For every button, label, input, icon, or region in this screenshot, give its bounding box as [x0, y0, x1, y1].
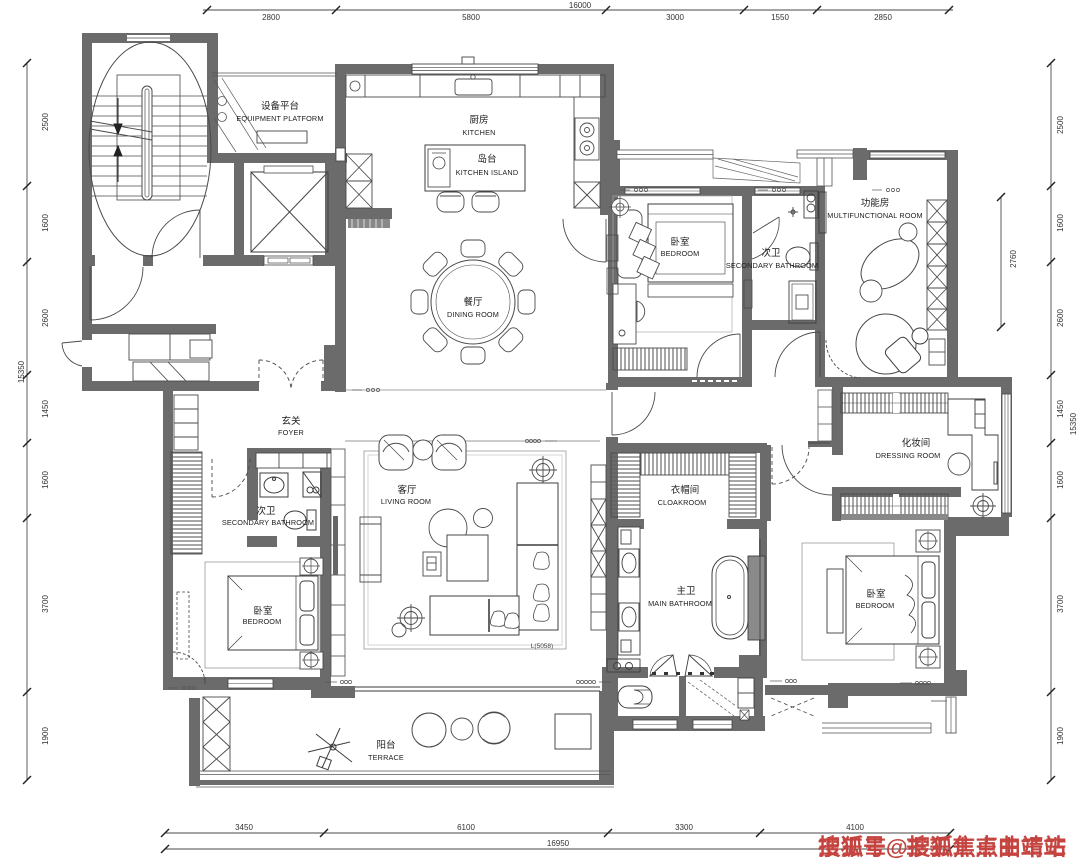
svg-text:BEDROOM: BEDROOM: [856, 601, 895, 610]
svg-text:CLOAKROOM: CLOAKROOM: [658, 498, 707, 507]
svg-text:15350: 15350: [1069, 412, 1078, 435]
svg-text:1600: 1600: [41, 471, 50, 489]
svg-text:16950: 16950: [547, 839, 570, 848]
svg-text:玄关: 玄关: [281, 415, 301, 427]
svg-text:TERRACE: TERRACE: [368, 753, 404, 762]
svg-text:2600: 2600: [1056, 309, 1065, 327]
svg-text:次卫: 次卫: [761, 247, 781, 259]
svg-text:1900: 1900: [41, 727, 50, 745]
svg-text:DRESSING ROOM: DRESSING ROOM: [876, 451, 941, 460]
svg-text:3000: 3000: [666, 13, 684, 22]
svg-text:厨房: 厨房: [469, 114, 488, 126]
svg-text:2500: 2500: [1056, 116, 1065, 134]
svg-text:DINING ROOM: DINING ROOM: [447, 310, 499, 319]
svg-text:FOYER: FOYER: [278, 428, 304, 437]
svg-text:岛台: 岛台: [477, 153, 496, 165]
svg-text:1600: 1600: [41, 214, 50, 232]
svg-text:客厅: 客厅: [397, 484, 417, 496]
svg-text:15350: 15350: [17, 360, 26, 383]
svg-text:L(5058): L(5058): [531, 643, 553, 650]
svg-text:2760: 2760: [1009, 250, 1018, 268]
svg-text:搜狐号@搜狐焦点曲靖站: 搜狐号@搜狐焦点曲靖站: [818, 834, 1066, 860]
svg-text:BEDROOM: BEDROOM: [243, 617, 282, 626]
svg-text:1600: 1600: [1056, 471, 1065, 489]
svg-text:LIVING ROOM: LIVING ROOM: [381, 497, 431, 506]
svg-text:1450: 1450: [1056, 400, 1065, 418]
svg-text:BEDROOM: BEDROOM: [661, 249, 700, 258]
svg-text:2500: 2500: [41, 113, 50, 131]
svg-text:3300: 3300: [675, 823, 693, 832]
svg-text:次卫: 次卫: [256, 505, 276, 517]
svg-text:功能房: 功能房: [861, 197, 890, 209]
svg-text:3700: 3700: [1056, 595, 1065, 613]
svg-text:1900: 1900: [1056, 727, 1065, 745]
svg-text:1600: 1600: [1056, 214, 1065, 232]
svg-text:卧室: 卧室: [253, 605, 272, 617]
svg-text:6100: 6100: [457, 823, 475, 832]
svg-text:主卫: 主卫: [676, 585, 696, 597]
svg-text:SECONDARY BATHROOM: SECONDARY BATHROOM: [222, 518, 314, 527]
svg-text:2800: 2800: [262, 13, 280, 22]
svg-text:阳台: 阳台: [376, 739, 395, 751]
svg-text:化妆间: 化妆间: [902, 437, 931, 449]
svg-text:16000: 16000: [569, 1, 592, 10]
svg-text:餐厅: 餐厅: [463, 296, 483, 308]
svg-text:1550: 1550: [771, 13, 789, 22]
svg-text:2850: 2850: [874, 13, 892, 22]
svg-text:MULTIFUNCTIONAL ROOM: MULTIFUNCTIONAL ROOM: [827, 211, 922, 220]
svg-text:3450: 3450: [235, 823, 253, 832]
svg-text:设备平台: 设备平台: [261, 100, 299, 112]
svg-text:SECONDARY BATHROOM: SECONDARY BATHROOM: [726, 261, 818, 270]
svg-text:4100: 4100: [846, 823, 864, 832]
svg-text:5800: 5800: [462, 13, 480, 22]
svg-text:1450: 1450: [41, 400, 50, 418]
svg-text:3700: 3700: [41, 595, 50, 613]
svg-text:KITCHEN ISLAND: KITCHEN ISLAND: [456, 168, 519, 177]
svg-text:卧室: 卧室: [670, 236, 689, 248]
svg-text:EQUIPMENT PLATFORM: EQUIPMENT PLATFORM: [236, 114, 323, 123]
svg-text:MAIN BATHROOM: MAIN BATHROOM: [648, 599, 712, 608]
svg-text:KITCHEN: KITCHEN: [462, 128, 495, 137]
svg-text:2600: 2600: [41, 309, 50, 327]
svg-text:卧室: 卧室: [866, 588, 885, 600]
svg-text:衣帽间: 衣帽间: [671, 484, 700, 496]
